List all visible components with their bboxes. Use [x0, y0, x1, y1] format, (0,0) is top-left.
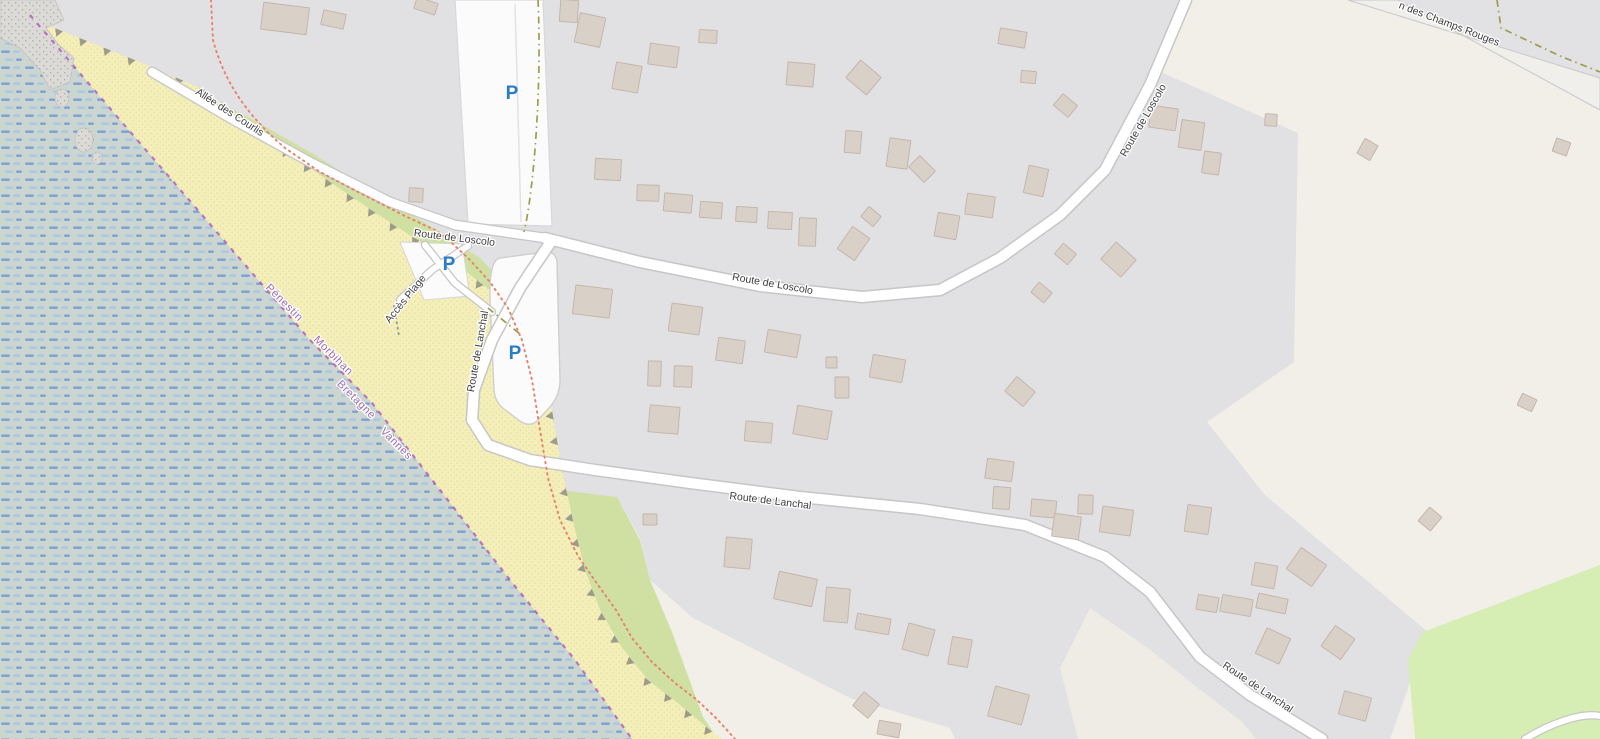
- building: [637, 185, 660, 202]
- parking-icon: P: [506, 83, 519, 104]
- building: [886, 138, 911, 170]
- building: [648, 361, 662, 386]
- building: [1265, 114, 1278, 127]
- building: [699, 30, 718, 44]
- building: [261, 2, 310, 34]
- building: [985, 458, 1015, 482]
- building: [663, 193, 692, 213]
- building: [612, 62, 642, 93]
- building: [835, 377, 849, 398]
- building: [574, 13, 606, 48]
- parking-icon: P: [443, 254, 456, 275]
- building: [572, 285, 612, 318]
- building: [844, 130, 862, 153]
- building: [826, 357, 837, 368]
- building: [648, 43, 680, 68]
- building: [965, 193, 996, 218]
- building: [559, 0, 578, 23]
- building: [1099, 506, 1133, 536]
- building: [1021, 70, 1037, 83]
- building: [1178, 120, 1205, 151]
- building: [799, 218, 817, 247]
- building: [724, 537, 753, 569]
- building: [1030, 499, 1056, 518]
- building: [716, 337, 746, 364]
- building: [1196, 594, 1219, 612]
- map-viewport[interactable]: PPP Allée des Courlis Route de Loscolo R…: [0, 0, 1600, 739]
- building: [699, 201, 722, 218]
- building: [1052, 513, 1082, 540]
- building: [643, 514, 657, 525]
- building: [594, 158, 621, 180]
- building: [934, 212, 960, 239]
- parking-strip-surface: [455, 0, 552, 226]
- building: [744, 421, 773, 443]
- building: [824, 587, 851, 623]
- building: [668, 303, 703, 335]
- building: [1184, 504, 1212, 534]
- map-canvas: PPP Allée des Courlis Route de Loscolo R…: [0, 0, 1600, 739]
- building: [793, 405, 833, 440]
- building: [648, 405, 680, 435]
- building: [1078, 495, 1094, 515]
- building: [992, 486, 1010, 509]
- building: [1251, 562, 1278, 589]
- building: [409, 188, 424, 203]
- building: [768, 211, 793, 229]
- building: [674, 366, 693, 388]
- building: [948, 636, 973, 667]
- parking-icon: P: [509, 343, 522, 364]
- building: [1202, 151, 1222, 175]
- building: [786, 62, 815, 87]
- building: [736, 206, 758, 222]
